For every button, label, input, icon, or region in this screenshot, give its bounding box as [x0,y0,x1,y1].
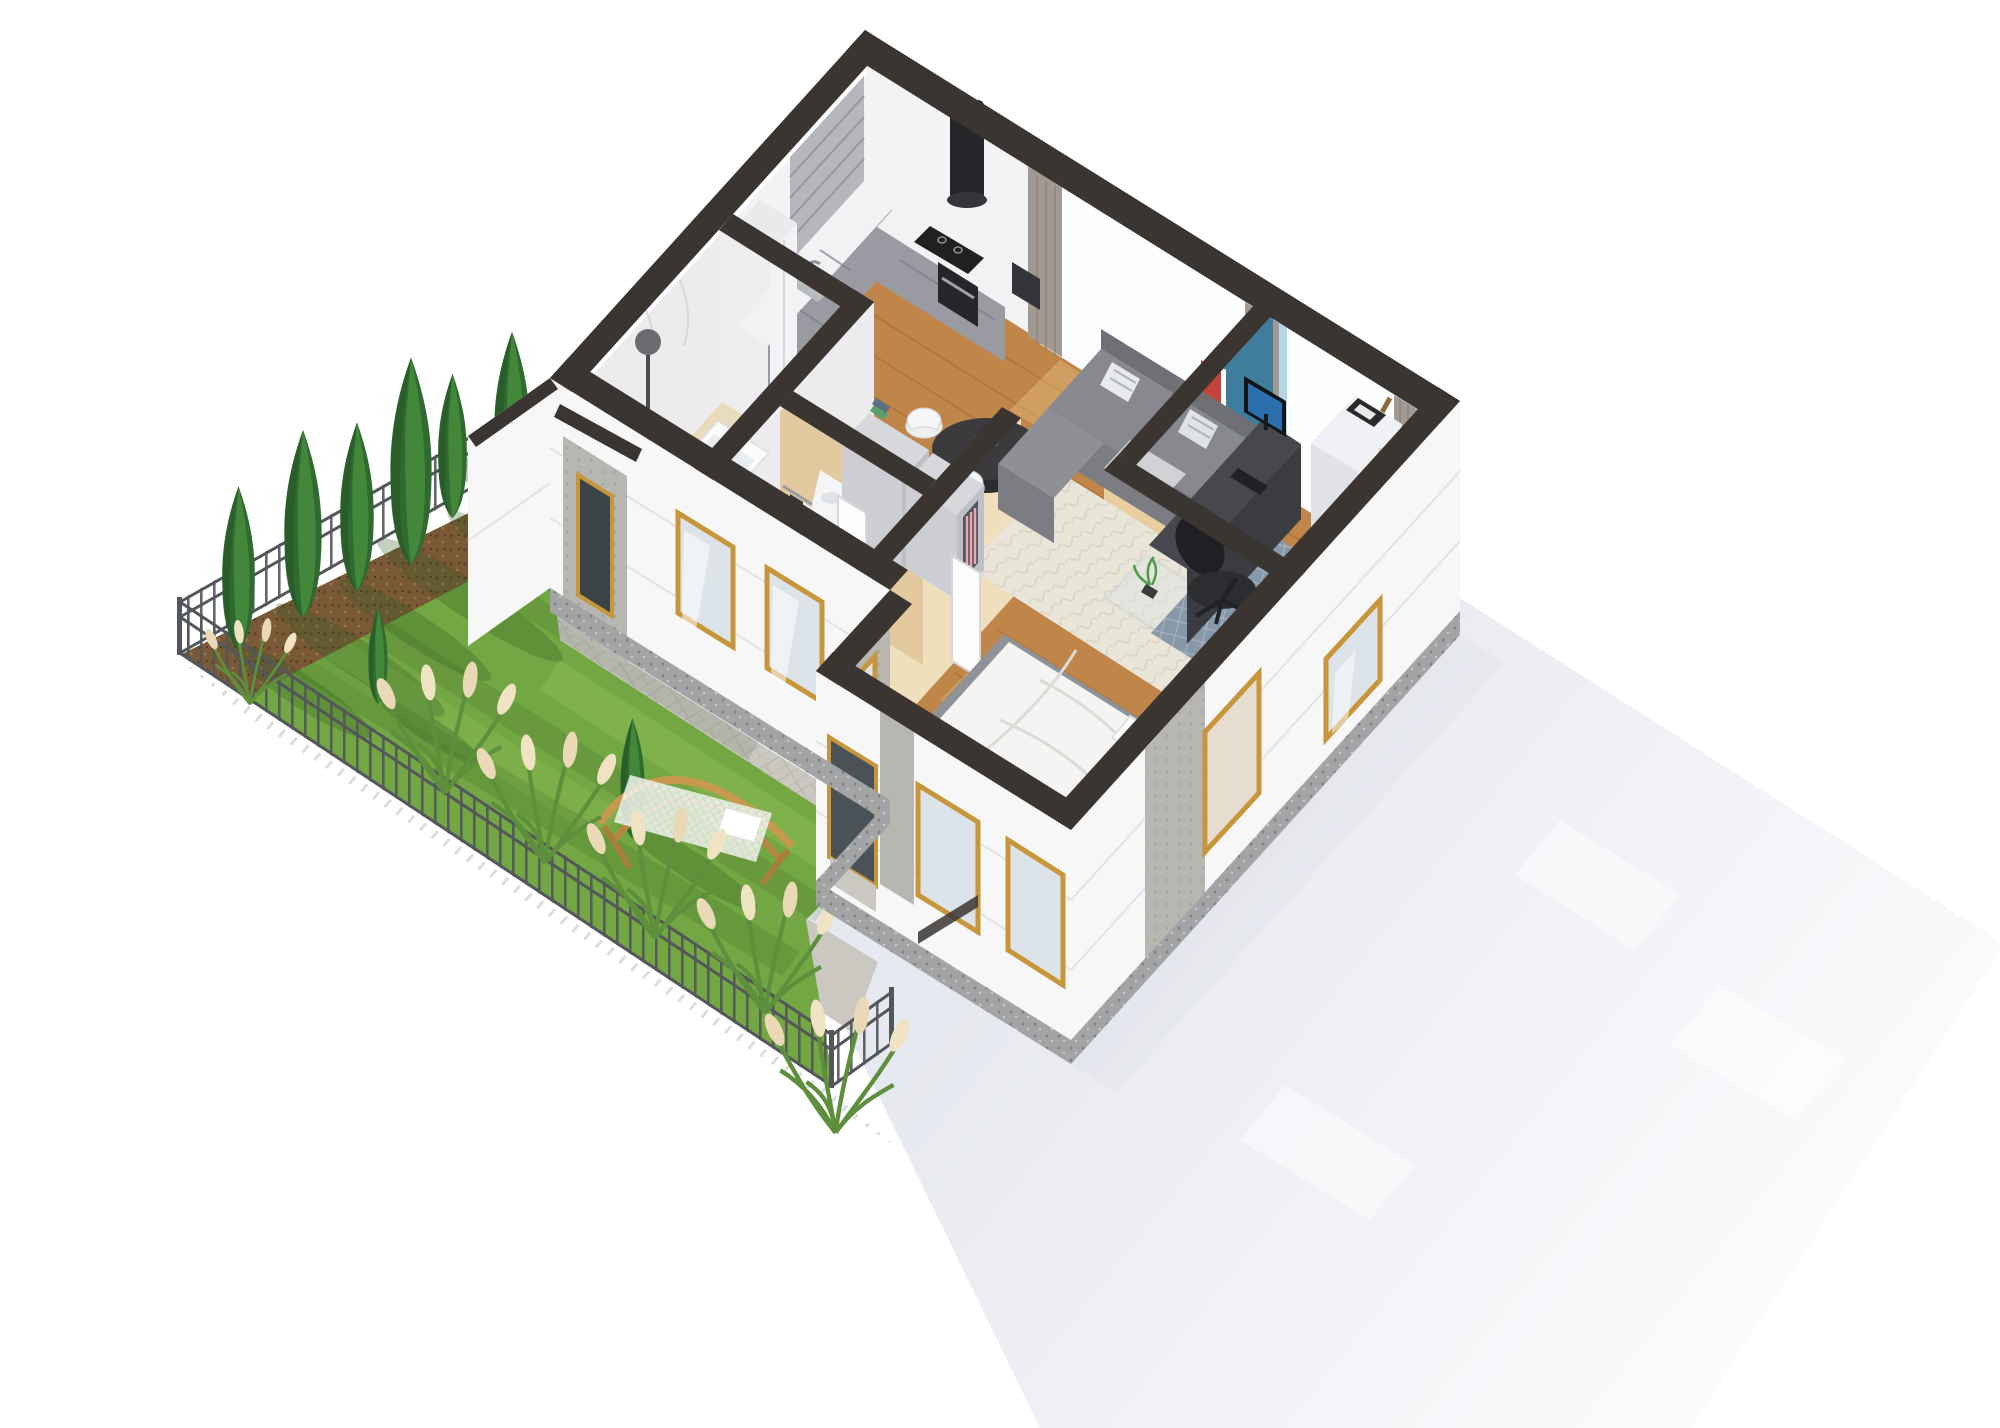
dining-chair [906,408,942,438]
cooker-hood-base [947,192,987,208]
floorplan-render [0,0,2000,1428]
bath-lamp-head [635,329,661,355]
isometric-scene [0,0,2000,1428]
door-leaf [952,556,980,678]
fence-post [829,1030,834,1088]
entry-door [578,475,612,616]
fence-post [177,597,182,655]
folded-clothes [967,508,975,572]
